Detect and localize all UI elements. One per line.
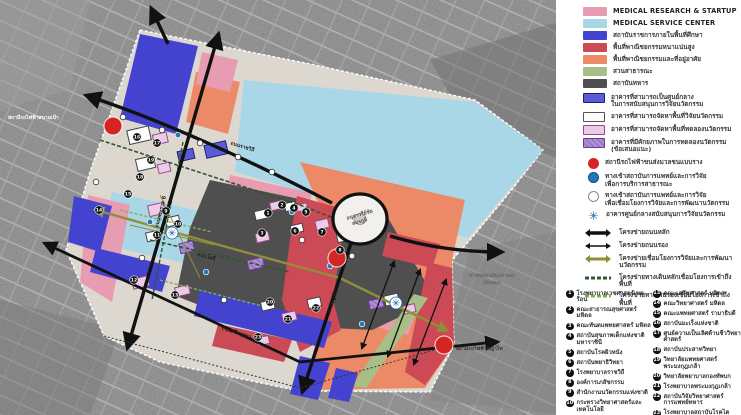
zone-swatch (583, 67, 607, 76)
place-number-badge: 19 (653, 357, 661, 365)
legend-points: สถานีรถไฟฟ้าขนส่งมวลชนแบบรางทางเข้าสถาบั… (556, 156, 741, 222)
entrance-dot-white (235, 154, 241, 160)
place-label: คณะวิทยาศาสตร์ มหิดล (664, 300, 725, 307)
map-badge-number: 23 (255, 335, 261, 341)
place-number-badge: 8 (566, 379, 574, 387)
zone-swatch (583, 31, 607, 40)
map-label: สถานีรถไฟฟ้าสนามเป้า (8, 114, 59, 121)
place-label: คณะสาธารณสุขศาสตร์ มหิดล (577, 306, 653, 320)
blue-circle-icon (588, 172, 599, 183)
legend-row-point: สถานีรถไฟฟ้าขนส่งมวลชนแบบราง (583, 158, 741, 169)
legend-label: ทางเข้าสถาบันการแพทย์และการวิจัย เพื่อเช… (605, 191, 729, 207)
place-number-badge: 13 (653, 290, 661, 298)
place-label: วิทยาลัยพยาบาลกองทัพบก (664, 373, 731, 380)
place-label: สำนักงานนวัตกรรมแห่งชาติ (577, 389, 648, 396)
legend-label: ทางเข้าสถาบันการแพทย์และการวิจัย เพื่อกา… (605, 172, 706, 188)
place-index-right-column: 13คณะเภสัชศาสตร์ มหิดล14คณะวิทยาศาสตร์ ม… (653, 290, 741, 415)
map-badge-number: 16 (134, 135, 140, 141)
place-row: 22สถาบันวิจัยวิทยาศาสตร์ การแพทย์ทหาร (653, 393, 741, 407)
entrance-dot-white (159, 127, 165, 133)
entrance-dot-blue (359, 321, 365, 327)
map-badge-number: 10 (175, 222, 181, 228)
legend-row-building: อาคารที่สามารถเป็นศูนย์กลาง ในการสนับสนุ… (583, 93, 741, 109)
map-badge-number: 5 (304, 210, 307, 216)
map-badge-number: 19 (148, 158, 154, 164)
legend-label: อาคารศูนย์กลางสนับสนุนการวิจัยนวัตกรรม (606, 210, 725, 218)
place-row: 17ศูนย์ความเป็นเลิศด้านชีววิทยาศาสตร์ (653, 330, 741, 344)
legend-row-zone: พื้นที่พาณิชยกรรมหนาแน่นสูง (583, 43, 741, 52)
building-swatch-hatch (583, 138, 605, 148)
place-number-badge: 4 (566, 333, 574, 341)
map-badge-number: 9 (164, 209, 167, 215)
place-row: 6สถาบันพยาธิวิทยา (566, 359, 652, 367)
place-row: 8องค์การเภสัชกรรม (566, 379, 652, 387)
map-badge-number: 18 (137, 175, 143, 181)
place-number-badge: 14 (653, 300, 661, 308)
legend-row-network: โครงข่ายถนนหลัก (583, 228, 741, 238)
place-label: โรงพยาบาลเวชศาสตร์เขตร้อน (577, 290, 653, 304)
legend-row-network: โครงข่ายเชื่อมโยงการวิจัยและการพัฒนานวัต… (583, 254, 741, 270)
place-label: กระทรวงวิทยาศาสตร์และเทคโนโลยี (577, 400, 653, 414)
entrance-dot-blue (203, 269, 209, 275)
map-badge-number: 13 (172, 293, 178, 299)
map-badge-number: 21 (285, 317, 291, 323)
place-label: สถาบันโรคผิวหนัง (577, 349, 623, 356)
place-row: 3คณะทันตแพทยศาสตร์ มหิดล (566, 323, 652, 331)
place-number-badge: 16 (653, 320, 661, 328)
legend-row-zone: สถาบันทหาร (583, 79, 741, 88)
map-label: สถานีรถไฟฟ้าพญาไท (456, 345, 503, 352)
entrance-dot-white (221, 297, 227, 303)
place-number-badge: 18 (653, 347, 661, 355)
map-badge-number: 15 (125, 192, 131, 198)
place-row: 14คณะวิทยาศาสตร์ มหิดล (653, 300, 741, 308)
map-badge-number: 11 (154, 233, 160, 239)
place-label: สถาบันวิจัยวิทยาศาสตร์ การแพทย์ทหาร (664, 393, 724, 407)
legend-buildings: อาคารที่สามารถเป็นศูนย์กลาง ในการสนับสนุ… (556, 91, 741, 153)
place-label: คณะทันตแพทยศาสตร์ มหิดล (577, 323, 651, 330)
place-label: คณะแพทยศาสตร์ รามาธิบดี (664, 310, 736, 317)
place-row: 19วิทยาลัยแพทยศาสตร์พระมงกุฎเกล้า (653, 357, 741, 371)
place-row: 1โรงพยาบาลเวชศาสตร์เขตร้อน (566, 290, 652, 304)
place-row: 5สถาบันโรคผิวหนัง (566, 349, 652, 357)
legend-label: โครงข่ายเชื่อมโยงการวิจัยและการพัฒนานวัต… (619, 254, 741, 270)
place-number-badge: 20 (653, 373, 661, 381)
place-number-badge: 23 (653, 410, 661, 415)
legend-label: อาคารที่สามารถเป็นศูนย์กลาง ในการสนับสนุ… (611, 93, 703, 109)
map-badge-number: 6 (293, 229, 296, 235)
map-badge-number: 8 (338, 248, 341, 254)
legend-label: พื้นที่พาณิชยกรรมและที่อยู่อาศัย (613, 55, 701, 63)
entrance-dot-white (93, 179, 99, 185)
place-number-badge: 1 (566, 290, 574, 298)
legend-label: MEDICAL RESEARCH & STARTUP (613, 7, 737, 16)
legend-row-zone: MEDICAL RESEARCH & STARTUP (583, 7, 741, 16)
hub-building-gear-icon: ✳ (168, 228, 176, 239)
place-row: 21โรงพยาบาลพระมงกุฎเกล้า (653, 383, 741, 391)
entrance-dot-blue (175, 132, 181, 138)
map-badge-number: 4 (292, 206, 295, 212)
legend-label: โครงข่ายทางเดินหลักเชื่อมโยงการเข้าถึงพื… (619, 273, 741, 289)
place-label: สถาบันประสาทวิทยา (664, 347, 717, 354)
map-badge-number: 22 (313, 306, 319, 312)
map-badge-number: 17 (154, 141, 160, 147)
rail-station-marker (104, 117, 122, 135)
legend-label: MEDICAL SERVICE CENTER (613, 19, 715, 28)
place-number-badge: 5 (566, 349, 574, 357)
legend-label: โครงข่ายถนนหลัก (619, 228, 670, 236)
entrance-dot-white (299, 237, 305, 243)
place-row: 20วิทยาลัยพยาบาลกองทัพบก (653, 373, 741, 381)
legend-row-building: อาคารที่มีศักยภาพในการทดลองนวัตกรรม (ข้อ… (583, 138, 741, 154)
place-label: โรงพยาบาลพระมงกุฎเกล้า (664, 383, 732, 390)
entrance-dot-white (139, 255, 145, 261)
legend-zones: MEDICAL RESEARCH & STARTUPMEDICAL SERVIC… (556, 0, 741, 88)
entrance-dot-white (120, 114, 126, 120)
map-badge-number: 2 (280, 203, 283, 209)
place-row: 18สถาบันประสาทวิทยา (653, 347, 741, 355)
gear-icon: ✳ (587, 210, 600, 223)
legend-row-zone: สถาบันราชการภายในพื้นที่ศึกษา (583, 31, 741, 40)
entrance-dot-white (349, 253, 355, 259)
entrance-dot-white (269, 169, 275, 175)
place-index-left-column: 1โรงพยาบาลเวชศาสตร์เขตร้อน2คณะสาธารณสุขศ… (566, 290, 652, 415)
place-number-badge: 15 (653, 310, 661, 318)
place-number-badge: 22 (653, 393, 661, 401)
network-line-icon (583, 273, 613, 283)
place-row: 7โรงพยาบาลราชวิถี (566, 369, 652, 377)
place-row: 15คณะแพทยศาสตร์ รามาธิบดี (653, 310, 741, 318)
place-number-badge: 9 (566, 389, 574, 397)
legend-label: อาคารที่มีศักยภาพในการทดลองนวัตกรรม (ข้อ… (611, 138, 727, 154)
legend-label: สถาบันทหาร (613, 79, 648, 87)
place-label: คณะเภสัชศาสตร์ มหิดล (664, 290, 725, 297)
place-label: สถาบันพยาธิวิทยา (577, 359, 623, 366)
entrance-dot-blue (147, 219, 153, 225)
map-label: (ดินแดง) (483, 279, 502, 286)
place-number-badge: 21 (653, 383, 661, 391)
place-row: 13คณะเภสัชศาสตร์ มหิดล (653, 290, 741, 298)
legend-label: อาคารที่สามารถจัดหาพื้นที่ทดลองนวัตกรรม (611, 125, 731, 133)
place-label: สถาบันสุขภาพเด็กแห่งชาติมหาราชินี (577, 333, 653, 347)
white-circle-icon (588, 191, 599, 202)
place-row: 2คณะสาธารณสุขศาสตร์ มหิดล (566, 306, 652, 320)
building-swatch-pink (583, 125, 605, 135)
legend-label: อาคารที่สามารถจัดหาพื้นที่วิจัยนวัตกรรม (611, 112, 723, 120)
network-line-icon (583, 254, 613, 264)
master-plan-svg: ✳✳ 1234567891011121314151617181920212223… (0, 0, 565, 415)
place-number-badge: 7 (566, 369, 574, 377)
legend-row-point: ทางเข้าสถาบันการแพทย์และการวิจัย เพื่อเช… (583, 191, 741, 207)
place-number-badge: 10 (566, 400, 574, 408)
legend-row-point: ✳อาคารศูนย์กลางสนับสนุนการวิจัยนวัตกรรม (583, 210, 741, 223)
place-number-badge: 2 (566, 306, 574, 314)
zone-swatch (583, 79, 607, 88)
legend-label: โครงข่ายถนนรอง (619, 241, 668, 249)
zone-swatch (583, 55, 607, 64)
entrance-dot-white (197, 140, 203, 146)
map-badge-number: 20 (267, 300, 273, 306)
building-swatch-white (583, 112, 605, 122)
place-row: 4สถาบันสุขภาพเด็กแห่งชาติมหาราชินี (566, 333, 652, 347)
rail-station-marker (435, 336, 453, 354)
map-badge-number: 3 (260, 231, 263, 237)
place-number-badge: 6 (566, 359, 574, 367)
place-label: ศูนย์ความเป็นเลิศด้านชีววิทยาศาสตร์ (664, 330, 741, 344)
place-number-badge: 3 (566, 323, 574, 331)
red-circle-icon (588, 158, 599, 169)
place-row: 23โรงพยาบาลสถาบันโรคไต ภูมิราชนครินทร์ (653, 410, 741, 415)
place-row: 16สถาบันมะเร็งแห่งชาติ (653, 320, 741, 328)
legend-label: สถานีรถไฟฟ้าขนส่งมวลชนแบบราง (605, 158, 702, 166)
place-number-badge: 17 (653, 330, 661, 338)
map-badge-number: 12 (131, 278, 137, 284)
legend-row-building: อาคารที่สามารถจัดหาพื้นที่ทดลองนวัตกรรม (583, 125, 741, 135)
zone-swatch (583, 19, 607, 28)
legend-label: พื้นที่พาณิชยกรรมหนาแน่นสูง (613, 43, 695, 51)
hub-building-gear-icon: ✳ (392, 298, 400, 309)
building-swatch-blue (583, 93, 605, 103)
network-line-icon (583, 228, 613, 238)
place-label: สถาบันมะเร็งแห่งชาติ (664, 320, 719, 327)
legend-row-point: ทางเข้าสถาบันการแพทย์และการวิจัย เพื่อกา… (583, 172, 741, 188)
map-canvas: ✳✳ 1234567891011121314151617181920212223… (0, 0, 565, 415)
map-badge-number: 1 (266, 211, 269, 217)
legend-row-network: โครงข่ายทางเดินหลักเชื่อมโยงการเข้าถึงพื… (583, 273, 741, 289)
place-label: วิทยาลัยแพทยศาสตร์พระมงกุฎเกล้า (664, 357, 741, 371)
legend-label: สถาบันราชการภายในพื้นที่ศึกษา (613, 31, 703, 39)
legend-row-zone: สวนสาธารณะ (583, 67, 741, 76)
legend-row-zone: MEDICAL SERVICE CENTER (583, 19, 741, 28)
place-label: โรงพยาบาลสถาบันโรคไต ภูมิราชนครินทร์ (664, 410, 730, 415)
legend-row-zone: พื้นที่พาณิชยกรรมและที่อยู่อาศัย (583, 55, 741, 64)
zone-swatch (583, 7, 607, 16)
zone-swatch (583, 43, 607, 52)
map-label: ทางพิเศษเฉลิมมหานคร (469, 272, 516, 279)
place-row: 10กระทรวงวิทยาศาสตร์และเทคโนโลยี (566, 400, 652, 414)
legend-row-network: โครงข่ายถนนรอง (583, 241, 741, 251)
map-badge-number: 7 (320, 230, 323, 236)
legend-row-building: อาคารที่สามารถจัดหาพื้นที่วิจัยนวัตกรรม (583, 112, 741, 122)
place-label: องค์การเภสัชกรรม (577, 379, 625, 386)
place-row: 9สำนักงานนวัตกรรมแห่งชาติ (566, 389, 652, 397)
network-line-icon (583, 241, 613, 251)
map-badge-number: 14 (96, 208, 102, 214)
master-plan-screenshot: ✳✳ 1234567891011121314151617181920212223… (0, 0, 741, 415)
place-label: โรงพยาบาลราชวิถี (577, 369, 625, 376)
legend-label: สวนสาธารณะ (613, 67, 653, 75)
